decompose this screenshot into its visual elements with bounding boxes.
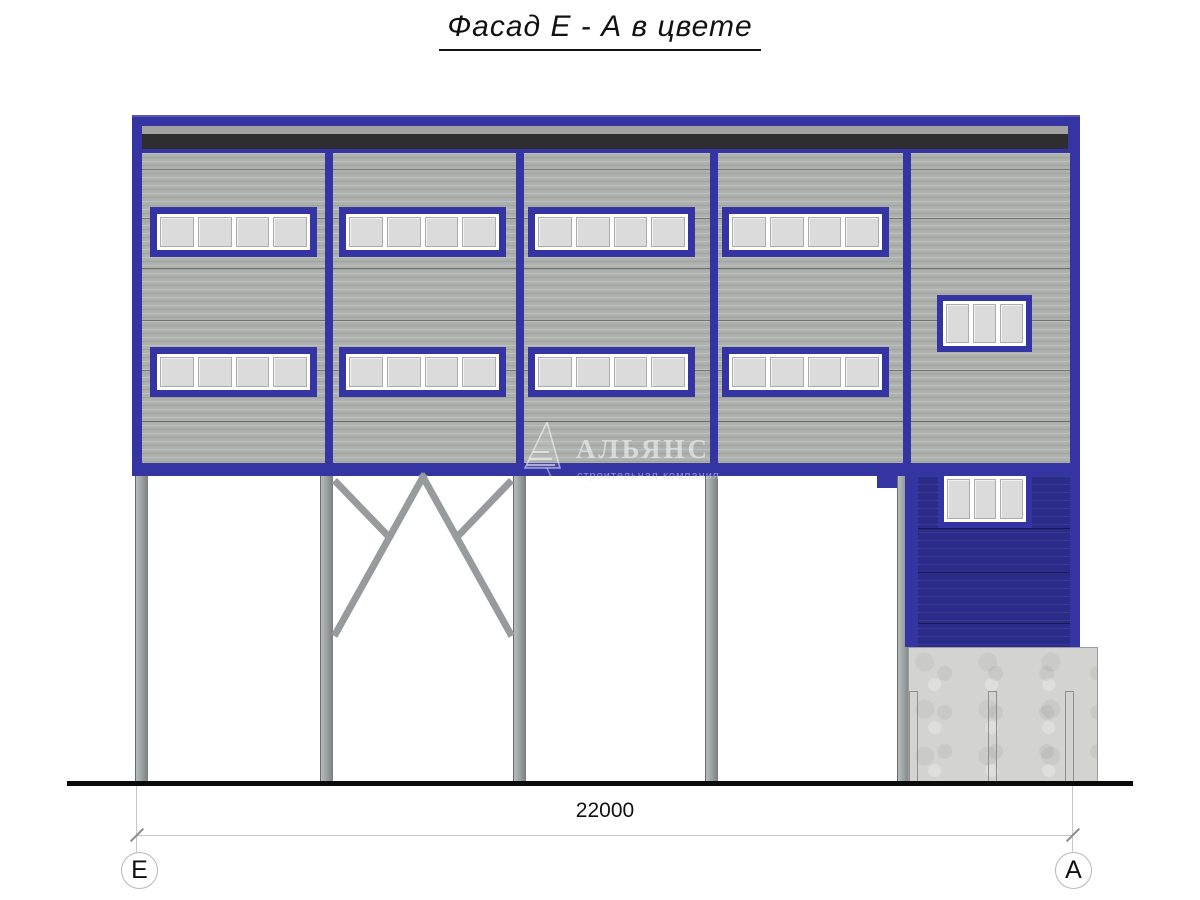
page-title: Фасад Е - А в цвете	[439, 10, 760, 51]
window-pane	[160, 357, 194, 387]
window-glass	[346, 214, 499, 250]
window-pane	[349, 217, 383, 247]
window-glass	[157, 354, 310, 390]
window-glass	[157, 214, 310, 250]
window-pane	[770, 217, 804, 247]
window-pane	[538, 357, 572, 387]
window-pane	[651, 217, 685, 247]
window-pane	[349, 357, 383, 387]
window-pane	[614, 357, 648, 387]
window-glass	[943, 301, 1026, 346]
strip-window	[528, 347, 695, 397]
window-glass	[535, 354, 688, 390]
window-pane	[387, 357, 421, 387]
windows-layer	[0, 0, 1200, 900]
window-pane	[808, 217, 842, 247]
window-pane	[808, 357, 842, 387]
window-pane	[462, 217, 496, 247]
window-glass	[346, 354, 499, 390]
small-window	[938, 470, 1032, 528]
facade-drawing-canvas: Фасад Е - А в цвете 22000 Е А	[0, 0, 1200, 900]
window-pane	[1000, 304, 1023, 343]
window-pane	[974, 479, 997, 519]
window-pane	[845, 217, 879, 247]
window-pane	[732, 217, 766, 247]
window-pane	[160, 217, 194, 247]
window-pane	[946, 304, 969, 343]
window-pane	[425, 357, 459, 387]
window-pane	[1000, 479, 1023, 519]
window-pane	[273, 217, 307, 247]
window-pane	[732, 357, 766, 387]
window-pane	[614, 217, 648, 247]
window-pane	[576, 357, 610, 387]
window-pane	[651, 357, 685, 387]
strip-window	[722, 347, 889, 397]
strip-window	[150, 347, 317, 397]
window-pane	[973, 304, 996, 343]
window-pane	[198, 357, 232, 387]
window-pane	[425, 217, 459, 247]
window-glass	[729, 214, 882, 250]
strip-window	[339, 207, 506, 257]
window-pane	[770, 357, 804, 387]
strip-window	[722, 207, 889, 257]
window-pane	[845, 357, 879, 387]
window-pane	[538, 217, 572, 247]
window-pane	[576, 217, 610, 247]
title-wrap: Фасад Е - А в цвете	[0, 10, 1200, 51]
small-window	[937, 295, 1032, 352]
window-pane	[273, 357, 307, 387]
window-pane	[462, 357, 496, 387]
window-pane	[236, 217, 270, 247]
window-pane	[387, 217, 421, 247]
window-glass	[535, 214, 688, 250]
window-pane	[198, 217, 232, 247]
window-pane	[236, 357, 270, 387]
window-pane	[947, 479, 970, 519]
window-glass	[729, 354, 882, 390]
strip-window	[339, 347, 506, 397]
strip-window	[150, 207, 317, 257]
strip-window	[528, 207, 695, 257]
window-glass	[944, 476, 1026, 522]
